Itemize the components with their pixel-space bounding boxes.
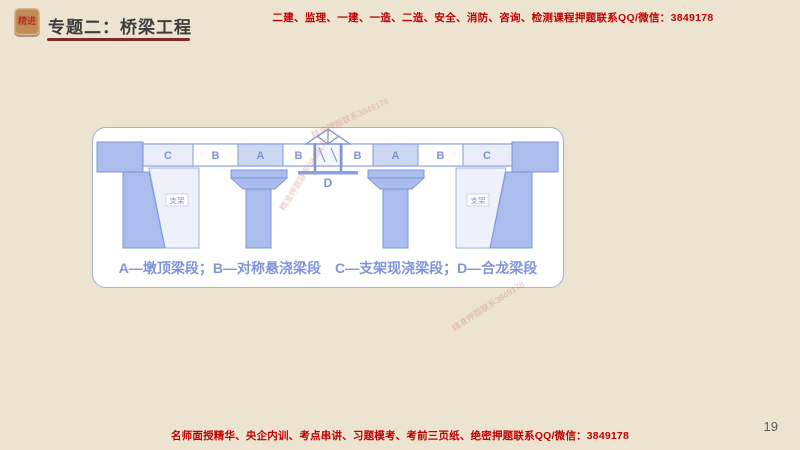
segment-label: C [164, 150, 172, 162]
pier-left-shaft [246, 189, 271, 248]
segment-label: B [354, 150, 362, 162]
left-abutment-cap [97, 142, 143, 172]
right-support-label: 支架 [471, 195, 486, 205]
closure-segment-label: D [324, 176, 333, 190]
page-title: 专题二：桥梁工程 [48, 13, 192, 38]
pier-left [231, 170, 287, 248]
segment-cell-d [314, 144, 342, 166]
brand-logo: 精进 [14, 8, 40, 35]
segment-label: C [483, 150, 491, 162]
pier-left-taper [231, 178, 287, 189]
right-abutment-cap [512, 142, 558, 172]
segment-label: A [392, 150, 400, 162]
left-support-label: 支架 [170, 195, 185, 205]
pier-left-cap [231, 170, 287, 178]
girder-segments: C B A B B A B C [143, 144, 512, 166]
bridge-diagram-panel: 支架 支架 [92, 127, 564, 288]
pier-right-cap [368, 170, 424, 178]
diagram-legend: A—墩顶梁段；B—对称悬浇梁段 C—支架现浇梁段；D—合龙梁段 [93, 258, 563, 278]
brand-logo-text: 精进 [18, 17, 36, 26]
page-number: 19 [764, 419, 778, 434]
segment-label: B [212, 150, 220, 162]
pier-right [368, 170, 424, 248]
truss-platform [298, 171, 358, 175]
segment-label: B [437, 150, 445, 162]
segment-label: A [257, 150, 265, 162]
top-promo-text: 二建、监理、一建、一造、二造、安全、消防、咨询、检测课程押题联系QQ/微信：38… [272, 10, 713, 25]
segment-label: B [295, 150, 303, 162]
pier-right-taper [368, 178, 424, 189]
pier-right-shaft [383, 189, 408, 248]
title-underline [47, 38, 190, 41]
footer-promo-text: 名师面授精华、央企内训、考点串讲、习题模考、考前三页纸、绝密押题联系QQ/微信：… [171, 428, 629, 443]
